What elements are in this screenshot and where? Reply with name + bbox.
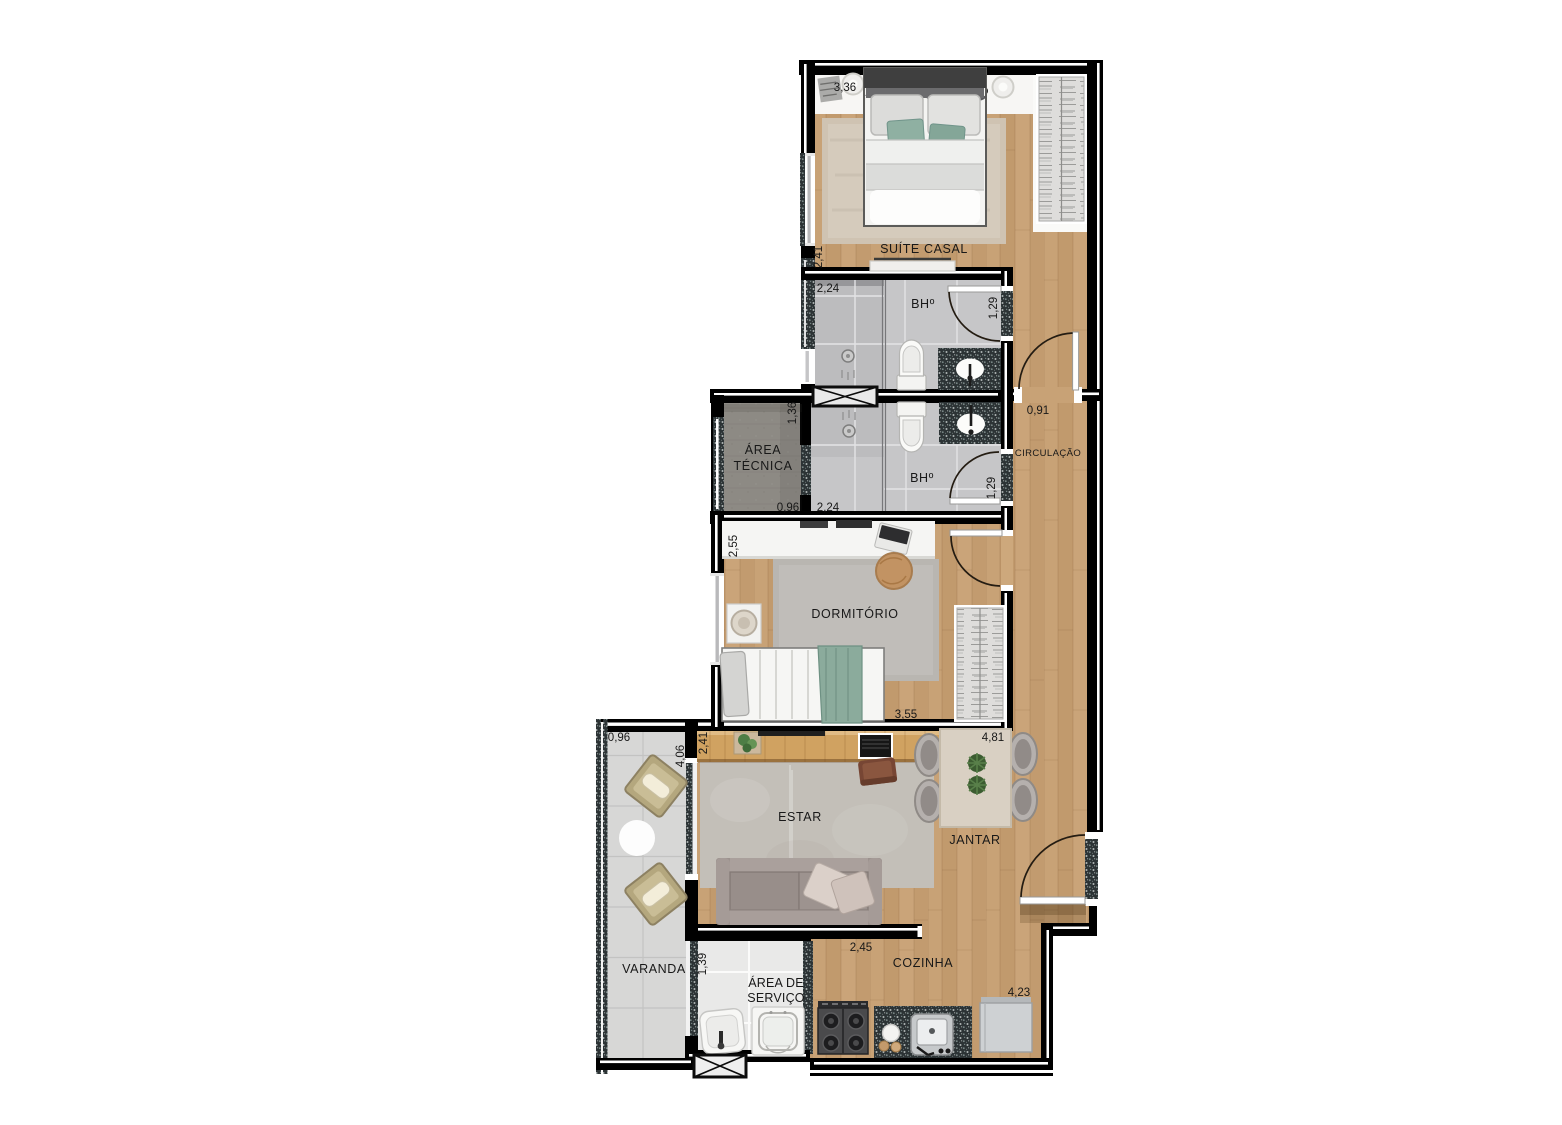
svg-text:4,23: 4,23 — [1008, 987, 1030, 999]
svg-text:BHº: BHº — [911, 297, 935, 311]
svg-text:1,39: 1,39 — [697, 953, 709, 975]
svg-text:DORMITÓRIO: DORMITÓRIO — [811, 606, 898, 621]
svg-text:2,41: 2,41 — [813, 246, 825, 268]
svg-text:COZINHA: COZINHA — [893, 956, 954, 970]
svg-text:0,91: 0,91 — [1027, 405, 1049, 417]
svg-text:ESTAR: ESTAR — [778, 810, 822, 824]
svg-text:2,24: 2,24 — [817, 283, 840, 295]
svg-text:2,45: 2,45 — [850, 942, 872, 954]
svg-text:1,29: 1,29 — [986, 477, 998, 499]
svg-text:JANTAR: JANTAR — [949, 833, 1000, 847]
svg-text:CIRCULAÇÃO: CIRCULAÇÃO — [1015, 448, 1081, 459]
svg-text:4,06: 4,06 — [675, 745, 687, 767]
svg-text:1,29: 1,29 — [988, 297, 1000, 319]
svg-text:TÉCNICA: TÉCNICA — [733, 458, 792, 473]
svg-text:3,55: 3,55 — [895, 709, 917, 721]
svg-text:4,81: 4,81 — [982, 732, 1004, 744]
svg-text:ÁREA DE: ÁREA DE — [748, 975, 804, 990]
svg-text:SERVIÇO: SERVIÇO — [747, 991, 805, 1005]
svg-text:2,55: 2,55 — [728, 535, 740, 557]
svg-text:0,96: 0,96 — [608, 732, 630, 744]
svg-text:ÁREA: ÁREA — [745, 442, 782, 457]
svg-text:BHº: BHº — [910, 471, 934, 485]
svg-text:3,36: 3,36 — [834, 82, 856, 94]
svg-text:2,24: 2,24 — [817, 502, 840, 514]
svg-text:SUÍTE CASAL: SUÍTE CASAL — [880, 241, 968, 256]
svg-text:VARANDA: VARANDA — [622, 962, 686, 976]
svg-text:0,96: 0,96 — [777, 502, 799, 514]
svg-text:2,41: 2,41 — [698, 732, 710, 754]
svg-text:1,36: 1,36 — [787, 402, 799, 424]
